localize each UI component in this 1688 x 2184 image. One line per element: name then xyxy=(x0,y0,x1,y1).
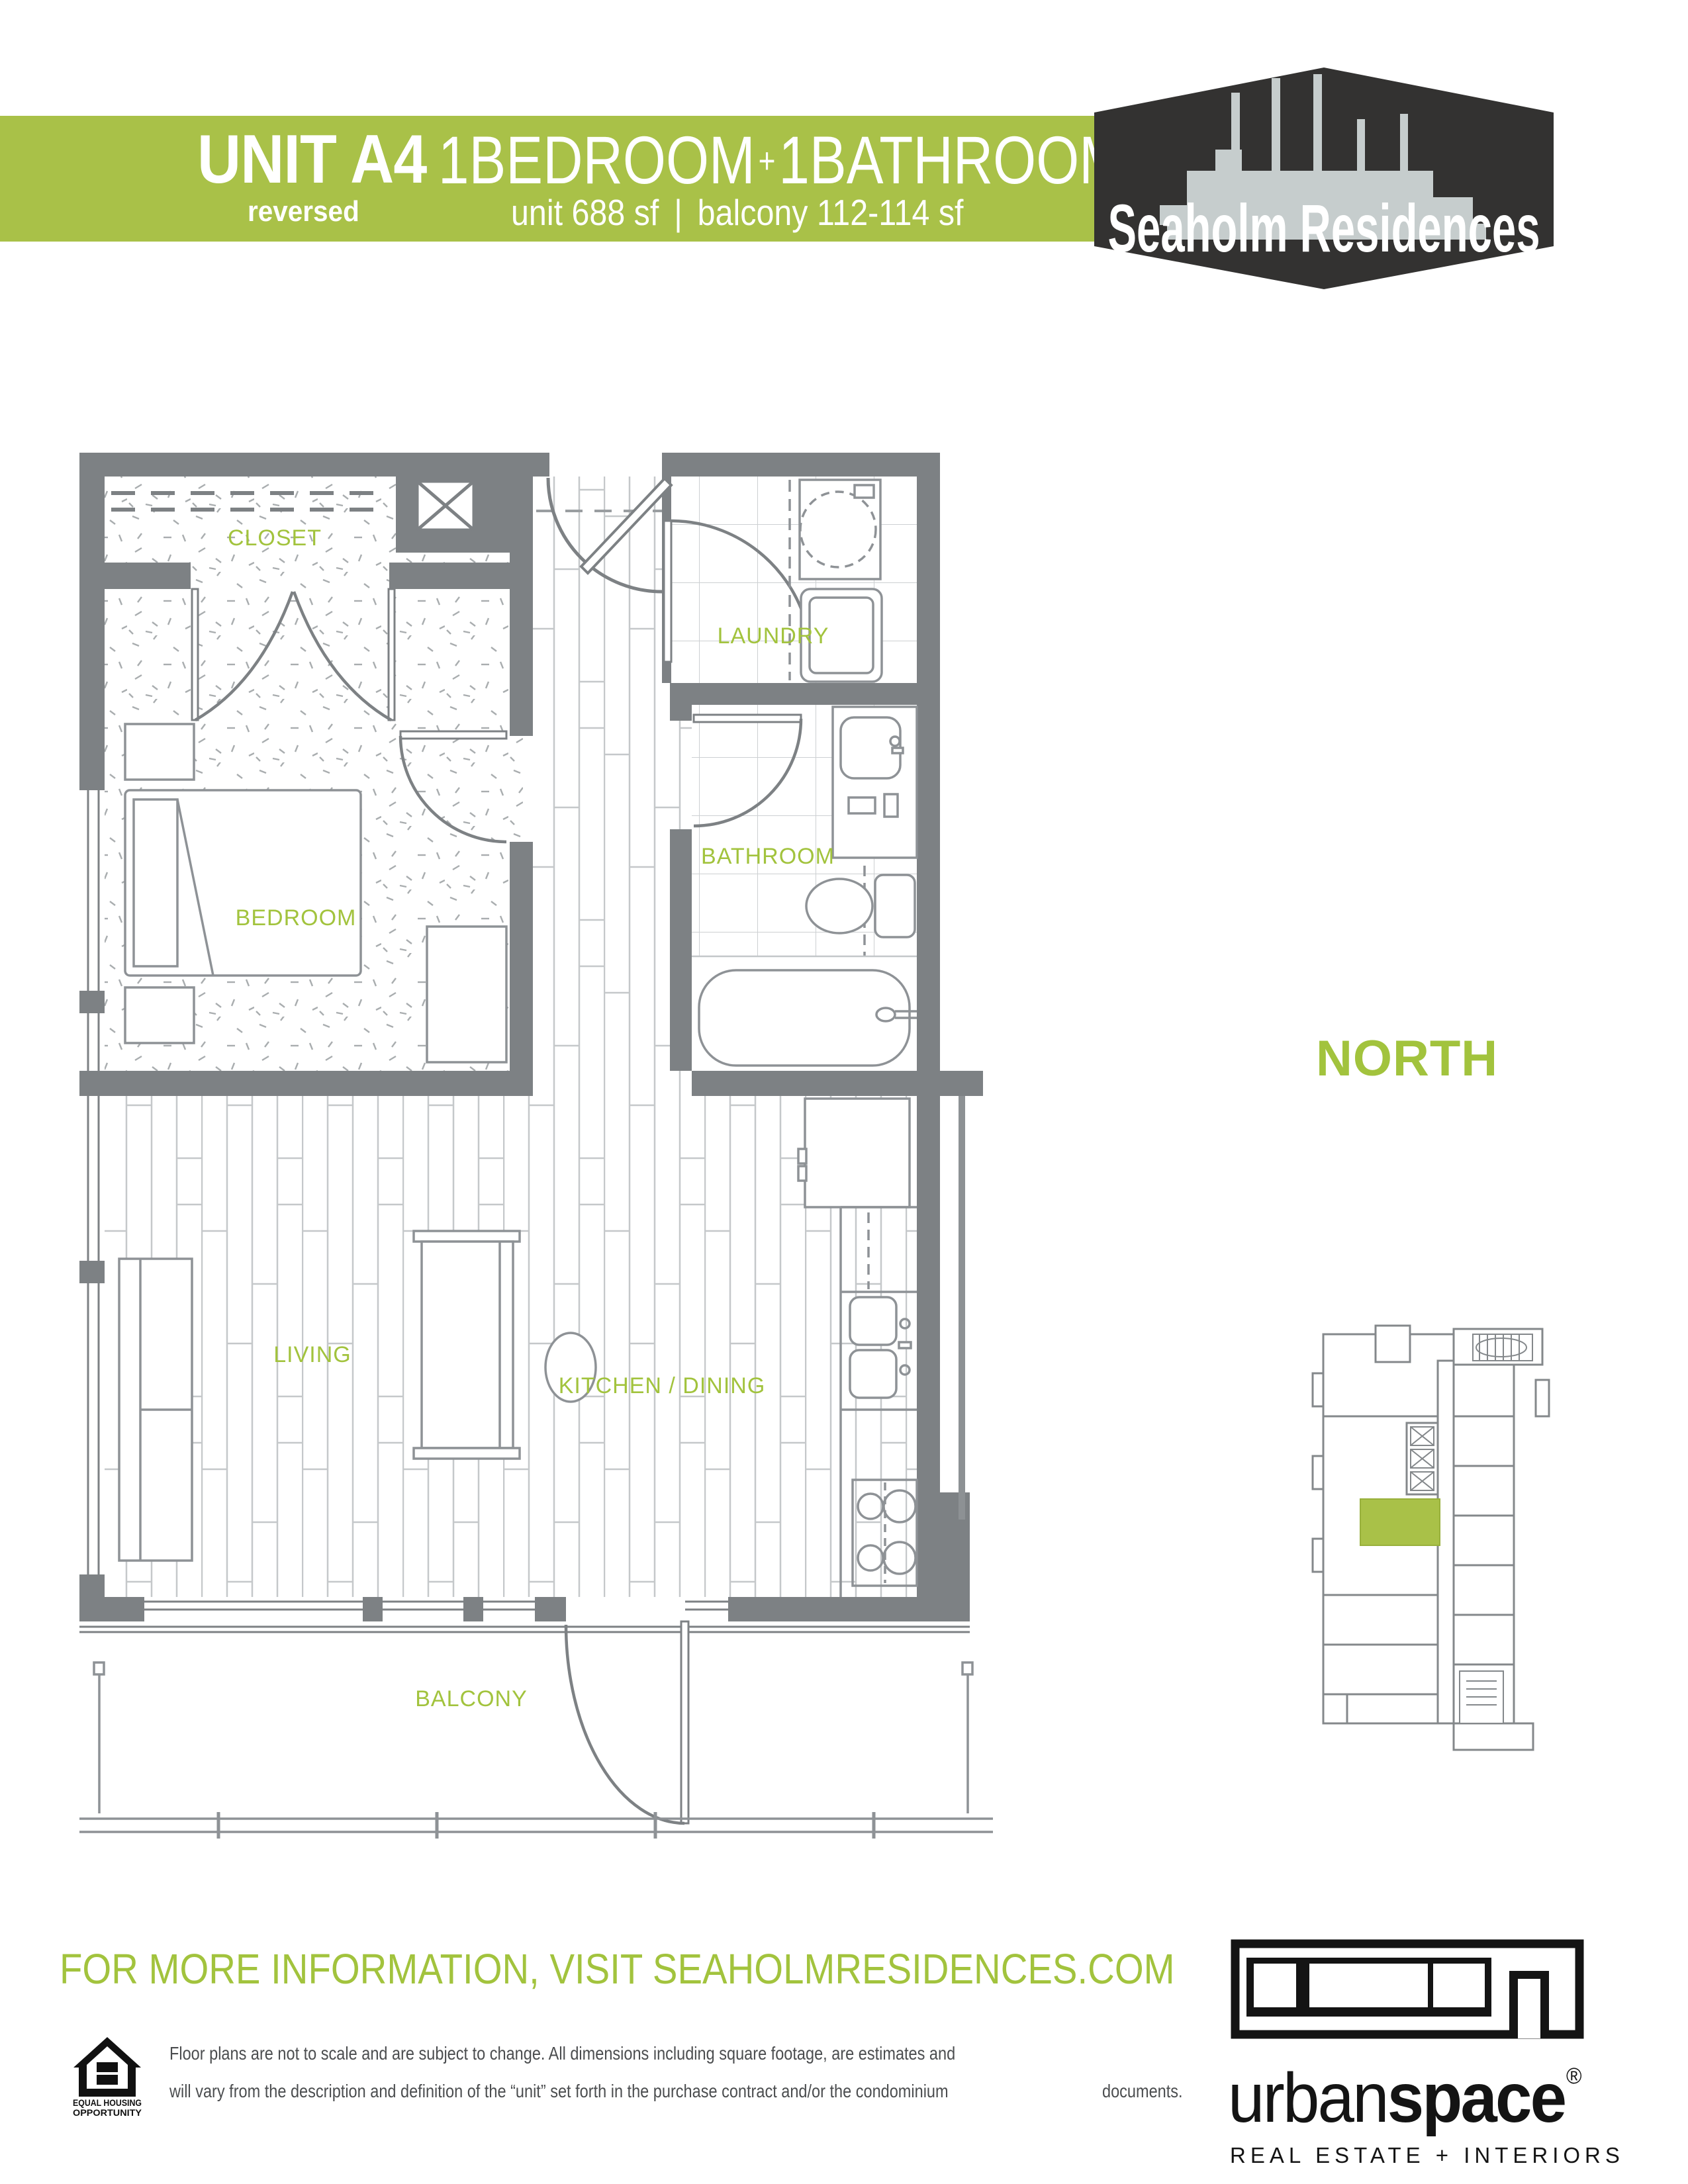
closet-label: CLOSET xyxy=(228,525,322,551)
fridge-icon xyxy=(798,1099,910,1207)
living-label: LIVING xyxy=(273,1342,351,1367)
highlighted-unit xyxy=(1360,1499,1440,1545)
urbanspace-wordmark: urbanspace® xyxy=(1228,2058,1603,2138)
bathroom-label: BATHROOM xyxy=(701,844,835,869)
brand-regular: urban xyxy=(1228,2059,1387,2137)
bathroom-count: 1BATHROOM xyxy=(778,122,1125,198)
more-info-line: FOR MORE INFORMATION, VISIT SEAHOLMRESID… xyxy=(60,1944,1327,1993)
eho-line2: OPPORTUNITY xyxy=(73,2107,142,2118)
disclaimer-line: documents. xyxy=(1102,2072,1183,2110)
nightstand-icon xyxy=(125,724,194,780)
brand-bold: space xyxy=(1387,2059,1565,2137)
kitchen-label: KITCHEN / DINING xyxy=(559,1373,766,1398)
washer-icon xyxy=(800,480,880,579)
balcony-door-icon xyxy=(566,1621,688,1823)
equal-housing-icon: EQUAL HOUSING OPPORTUNITY xyxy=(73,2036,165,2118)
variant-label: reversed xyxy=(248,195,369,228)
bedroom-label: BEDROOM xyxy=(236,905,357,931)
badge-title: Seaholm Residences xyxy=(1107,191,1540,266)
bathtub-icon xyxy=(699,970,917,1066)
urbanspace-mark xyxy=(1228,1933,1592,2042)
area-separator: | xyxy=(659,192,697,233)
balcony-railing xyxy=(79,1662,993,1839)
unit-title: UNIT A4 xyxy=(197,120,458,199)
flyer-page: UNIT A4 1BEDROOM+1BATHROOM reversed unit… xyxy=(0,0,1688,2184)
plus-sign: + xyxy=(755,141,779,181)
registered-mark: ® xyxy=(1566,2064,1582,2089)
key-plan xyxy=(1251,1314,1562,1757)
dresser-icon xyxy=(427,927,506,1062)
balcony-area: balcony 112-114 sf xyxy=(698,192,964,233)
sofa-icon xyxy=(119,1259,192,1561)
column-icon xyxy=(417,481,474,530)
hall-floor xyxy=(533,683,692,1096)
balcony-label: BALCONY xyxy=(415,1686,528,1711)
bedroom-count: 1BEDROOM xyxy=(438,122,755,198)
seaholm-badge: Seaholm Residences xyxy=(1079,56,1569,298)
floor-plan: CLOSET LAUNDRY BATHROOM BEDROOM LIVING K… xyxy=(66,417,1026,1866)
bed-icon xyxy=(125,790,361,976)
laundry-label: LAUNDRY xyxy=(718,623,829,649)
eho-line1: EQUAL HOUSING xyxy=(73,2097,142,2108)
north-label: NORTH xyxy=(1316,1030,1515,1087)
unit-area: unit 688 sf xyxy=(511,192,659,233)
agency-tagline: REAL ESTATE + INTERIORS xyxy=(1230,2143,1624,2168)
dining-table-icon xyxy=(414,1231,520,1459)
disclaimer-line: will vary from the description and defin… xyxy=(169,2072,949,2110)
nightstand-icon xyxy=(125,987,194,1043)
bathroom-sink-icon xyxy=(833,707,917,858)
area-line: unit 688 sf|balcony 112-114 sf xyxy=(511,191,1025,234)
disclaimer-line: Floor plans are not to scale and are sub… xyxy=(169,2034,955,2072)
